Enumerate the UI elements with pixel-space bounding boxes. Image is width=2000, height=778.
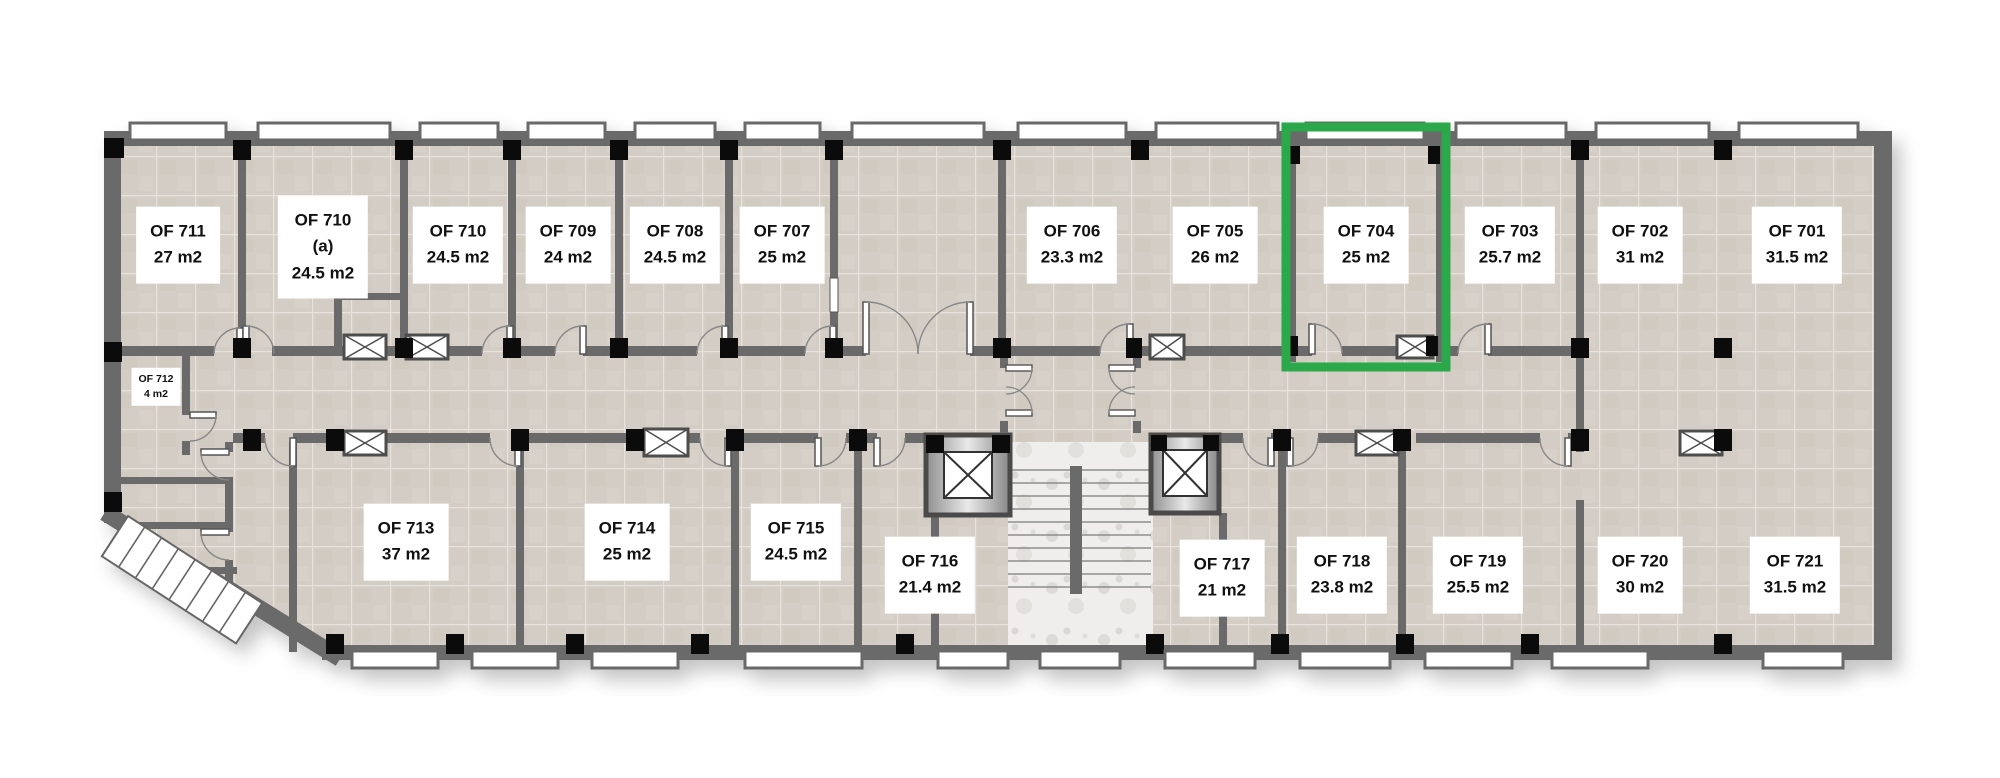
room-label-of-705[interactable]: OF 70526 m2 [1173, 207, 1258, 284]
room-label-of-719[interactable]: OF 71925.5 m2 [1433, 537, 1523, 614]
room-label-of-709[interactable]: OF 70924 m2 [526, 207, 611, 284]
room-label-of-720[interactable]: OF 72030 m2 [1598, 537, 1683, 614]
room-label-of-717[interactable]: OF 71721 m2 [1180, 540, 1265, 617]
room-label-of-710[interactable]: OF 71024.5 m2 [413, 207, 503, 284]
room-label-of-706[interactable]: OF 70623.3 m2 [1027, 207, 1117, 284]
room-label-of-707[interactable]: OF 70725 m2 [740, 207, 825, 284]
room-label-of-714[interactable]: OF 71425 m2 [585, 504, 670, 581]
room-label-of-710a[interactable]: OF 710(a)24.5 m2 [278, 195, 368, 298]
room-label-of-711[interactable]: OF 71127 m2 [136, 207, 220, 284]
room-label-of-708[interactable]: OF 70824.5 m2 [630, 207, 720, 284]
room-label-of-712[interactable]: OF 7124 m2 [131, 368, 180, 406]
room-label-of-701[interactable]: OF 70131.5 m2 [1752, 207, 1842, 284]
room-label-of-718[interactable]: OF 71823.8 m2 [1297, 537, 1387, 614]
floor-plan-page: OF 71127 m2 OF 710(a)24.5 m2 OF 71024.5 … [0, 0, 2000, 778]
room-label-of-721[interactable]: OF 72131.5 m2 [1750, 537, 1840, 614]
room-label-of-702[interactable]: OF 70231 m2 [1598, 207, 1683, 284]
floor-plan-canvas [0, 0, 2000, 778]
room-label-of-713[interactable]: OF 71337 m2 [364, 504, 449, 581]
room-label-of-703[interactable]: OF 70325.7 m2 [1465, 207, 1555, 284]
room-label-of-704[interactable]: OF 70425 m2 [1324, 207, 1409, 284]
room-label-of-716[interactable]: OF 71621.4 m2 [885, 537, 975, 614]
room-label-of-715[interactable]: OF 71524.5 m2 [751, 504, 841, 581]
